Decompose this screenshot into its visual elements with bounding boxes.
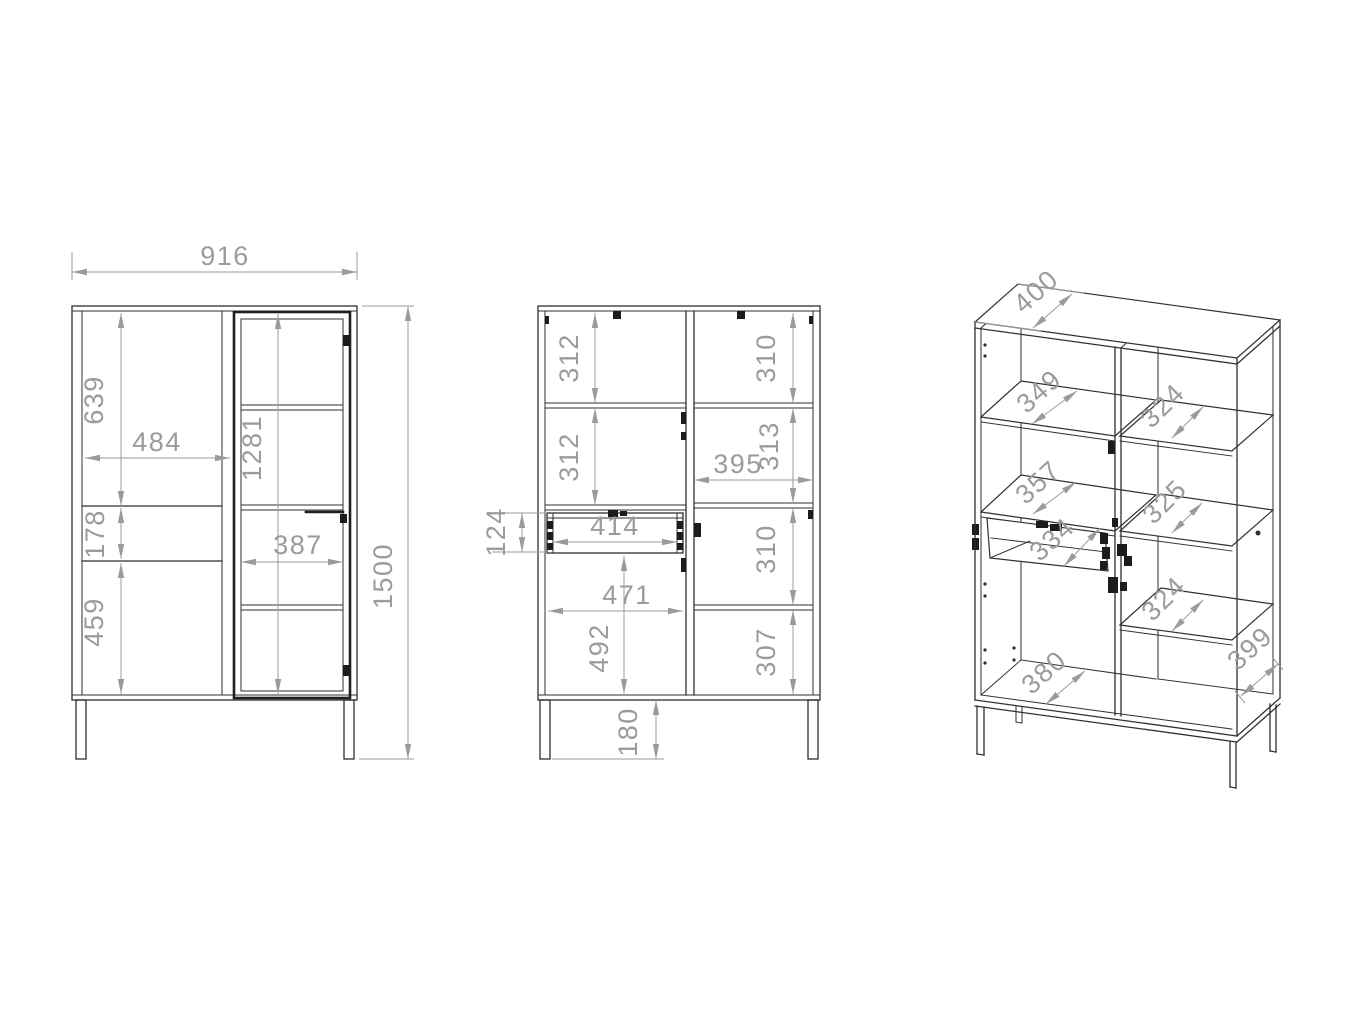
internal-view-dimensions: 312 312 310 313 395 124 414 471 492 310 … <box>481 313 813 759</box>
perspective-view: 400 349 324 357 325 334 324 380 399 <box>972 264 1283 788</box>
hinge-icon <box>1108 441 1115 454</box>
dim-mid-left: 312 <box>554 432 584 482</box>
perspective-structure <box>972 284 1280 788</box>
dim-drawer-front: 178 <box>80 509 110 559</box>
dim-left-door-width: 484 <box>132 427 182 457</box>
dim-lower-section: 459 <box>79 597 109 647</box>
leg <box>540 700 550 759</box>
dim-glass-door-width: 387 <box>273 530 323 560</box>
hinge-icon <box>1108 577 1118 593</box>
dim-top-right: 310 <box>751 333 781 383</box>
dim-bottom-right: 307 <box>751 627 781 677</box>
dim-glass-door-height: 1281 <box>237 415 267 481</box>
dim-drawer-width: 414 <box>590 511 640 541</box>
dim-left-width: 471 <box>602 580 652 610</box>
dim-top-left: 312 <box>554 333 584 383</box>
hinge-icon <box>694 523 701 537</box>
handle-hole <box>1256 531 1261 536</box>
dim-overall-width: 916 <box>200 241 250 271</box>
internal-view: 312 312 310 313 395 124 414 471 492 310 … <box>481 306 820 759</box>
dim-lower-right: 310 <box>751 524 781 574</box>
dim-bottom-depth: 380 <box>1016 645 1073 700</box>
hinge-icon <box>343 335 349 346</box>
leg <box>344 700 354 759</box>
technical-drawing: 916 1500 639 178 459 484 1281 387 <box>0 0 1357 1017</box>
dim-drawer-opening: 124 <box>481 507 511 557</box>
front-view: 916 1500 639 178 459 484 1281 387 <box>72 241 414 759</box>
dim-leg-height: 180 <box>613 707 643 757</box>
hinge-icon <box>343 665 349 676</box>
dim-upper-section: 639 <box>79 375 109 425</box>
dim-overall-height: 1500 <box>368 543 398 609</box>
drawing-canvas: 916 1500 639 178 459 484 1281 387 <box>0 0 1357 1017</box>
hinge-icon <box>1117 544 1127 556</box>
dim-lower-left: 492 <box>584 623 614 673</box>
dim-right-width: 395 <box>713 449 763 479</box>
leg <box>76 700 86 759</box>
hinge-icon <box>681 412 686 424</box>
leg <box>808 700 818 759</box>
